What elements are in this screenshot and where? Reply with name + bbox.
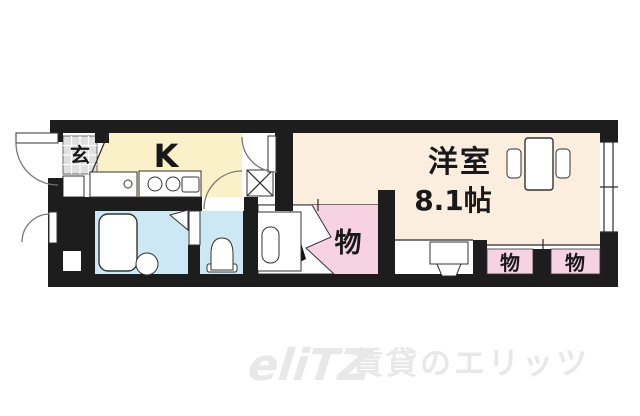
wash-bowl-icon (136, 253, 158, 275)
grill-icon (182, 177, 199, 192)
western-room-size: 8.1帖 (414, 184, 492, 217)
dining-table-icon (525, 138, 553, 190)
shoe-cabinet (63, 176, 84, 197)
burner-icon (148, 177, 162, 191)
bathtub-icon (99, 214, 137, 271)
watermark-text: 賃貸のエリッツ (351, 346, 590, 382)
burner-icon (166, 177, 180, 191)
x-square-icon (247, 170, 273, 196)
storage-label-2: 物 (565, 251, 585, 275)
floor-plan: 玄 K 洋室 8.1帖 物 物 物 eliTZ 賃貸のエリッツ (0, 0, 640, 416)
kitchen-room-door-leaf (268, 136, 276, 172)
lower-door-arc-icon (22, 214, 49, 242)
bath-door-panel (189, 211, 200, 245)
storage-label-1: 物 (500, 251, 520, 275)
kitchen-label: K (154, 137, 180, 175)
entrance-door (16, 133, 58, 185)
lower-door-leaf (49, 212, 57, 243)
desk-icon (430, 242, 468, 264)
lower-left-door (22, 212, 57, 243)
washing-machine-icon (262, 227, 279, 263)
closet-label: 物 (335, 228, 362, 259)
chair-icon (507, 149, 521, 178)
wall-notch (63, 251, 81, 271)
entrance-label: 玄 (70, 143, 90, 167)
western-room-label: 洋室 (428, 145, 492, 180)
entrance-door-leaf (16, 133, 58, 143)
kitchen-room-door (242, 136, 277, 172)
window-icon (600, 142, 618, 232)
sink-drain-icon (124, 180, 132, 188)
chair-icon (556, 149, 570, 178)
watermark: eliTZ 賃貸のエリッツ (246, 340, 590, 391)
